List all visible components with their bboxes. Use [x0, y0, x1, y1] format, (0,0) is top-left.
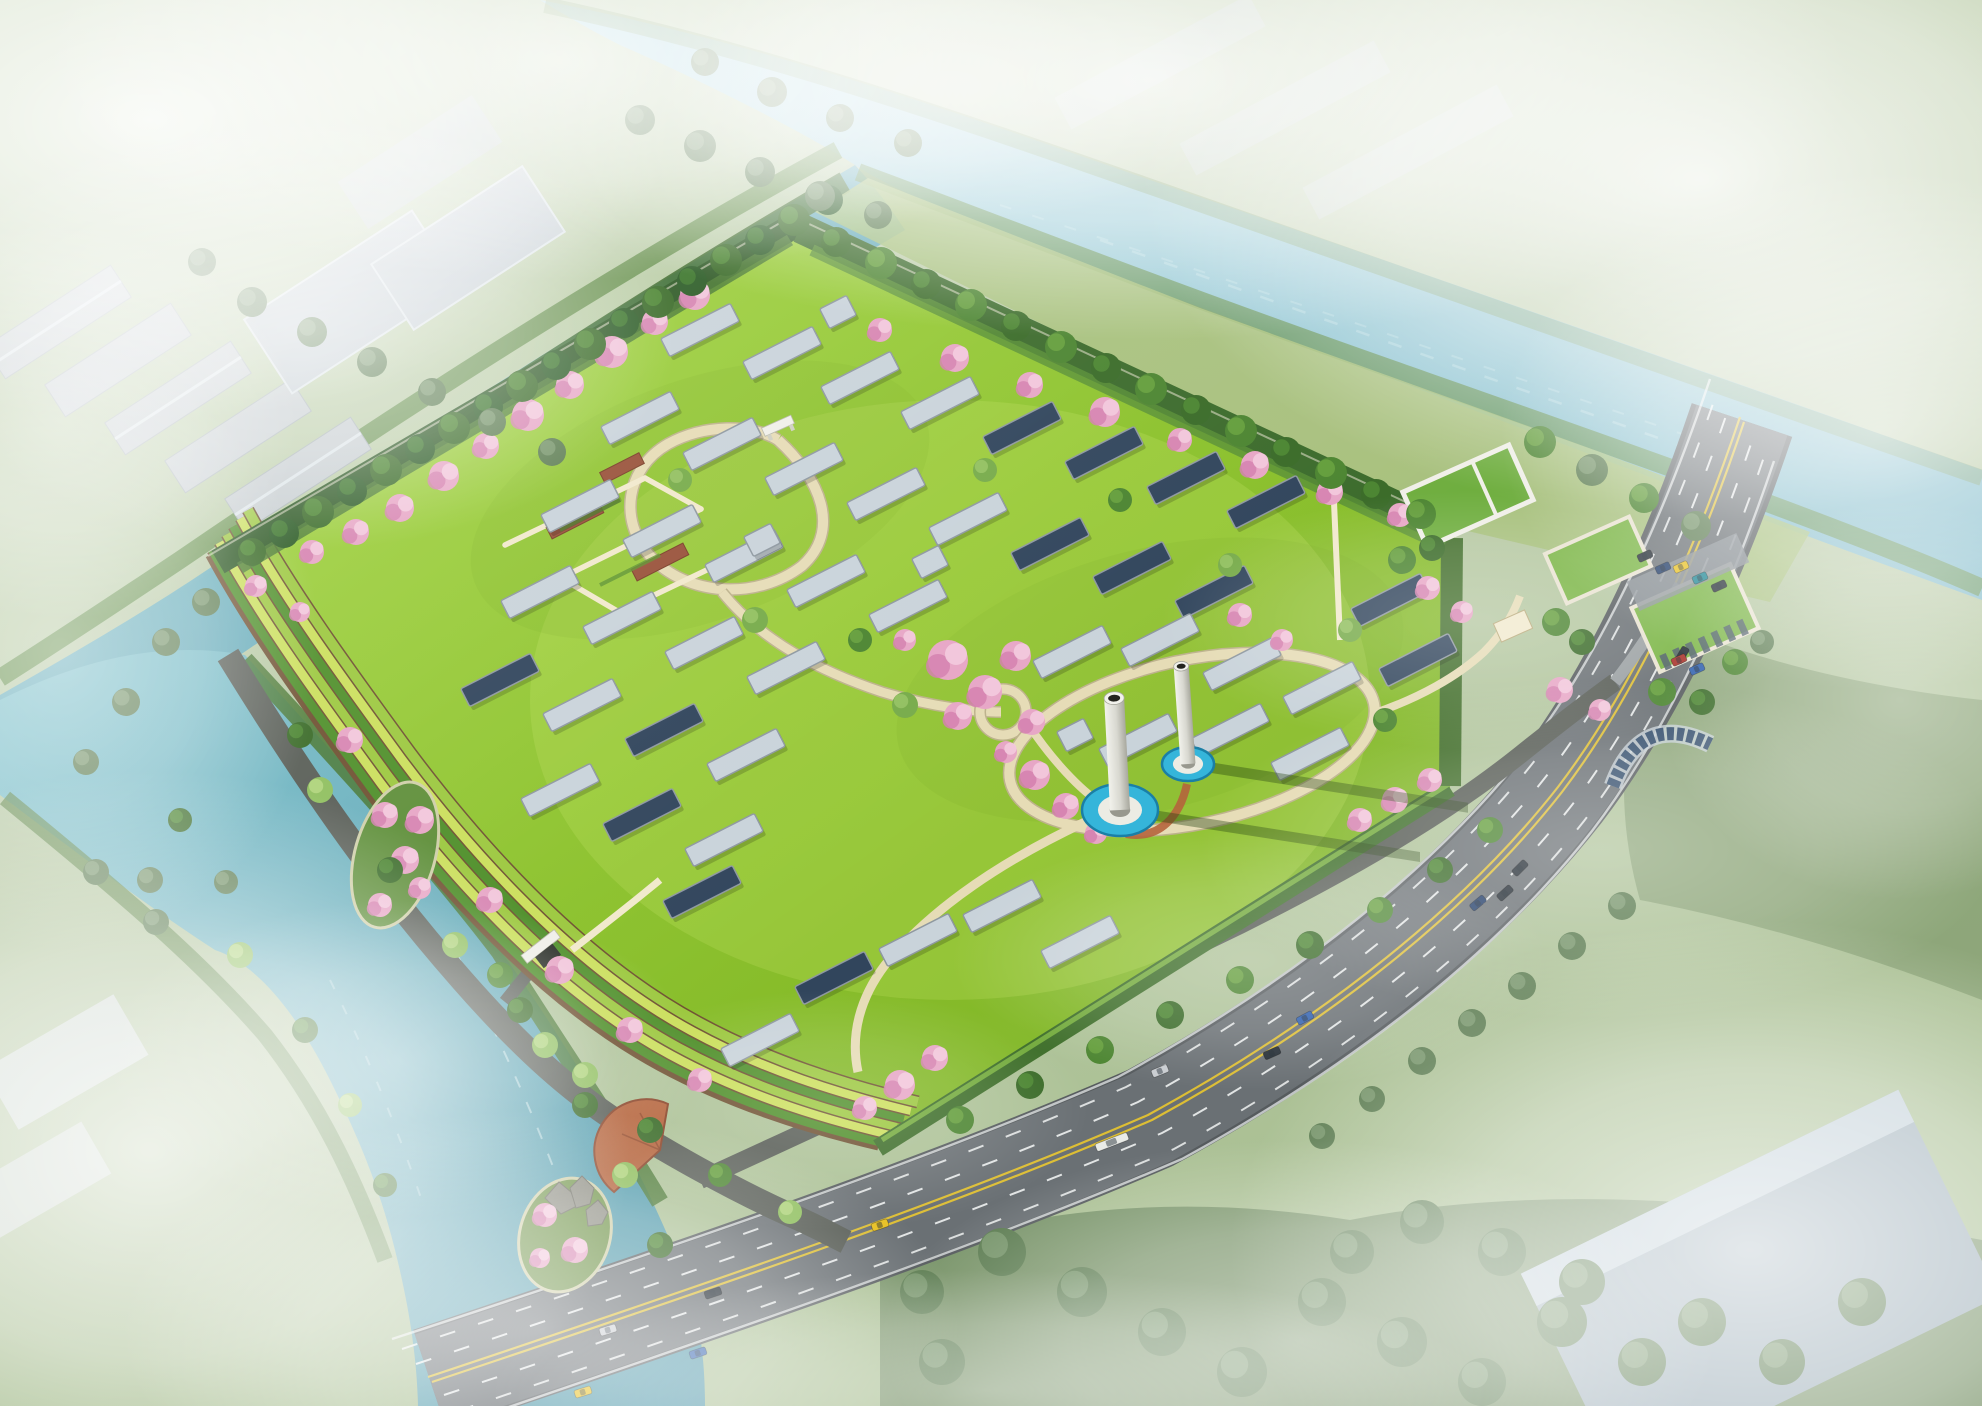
aerial-rendering — [0, 0, 1982, 1406]
fog-patch — [100, 900, 700, 1220]
rendering-stage: Aerial architectural rendering: riversid… — [0, 0, 1982, 1406]
